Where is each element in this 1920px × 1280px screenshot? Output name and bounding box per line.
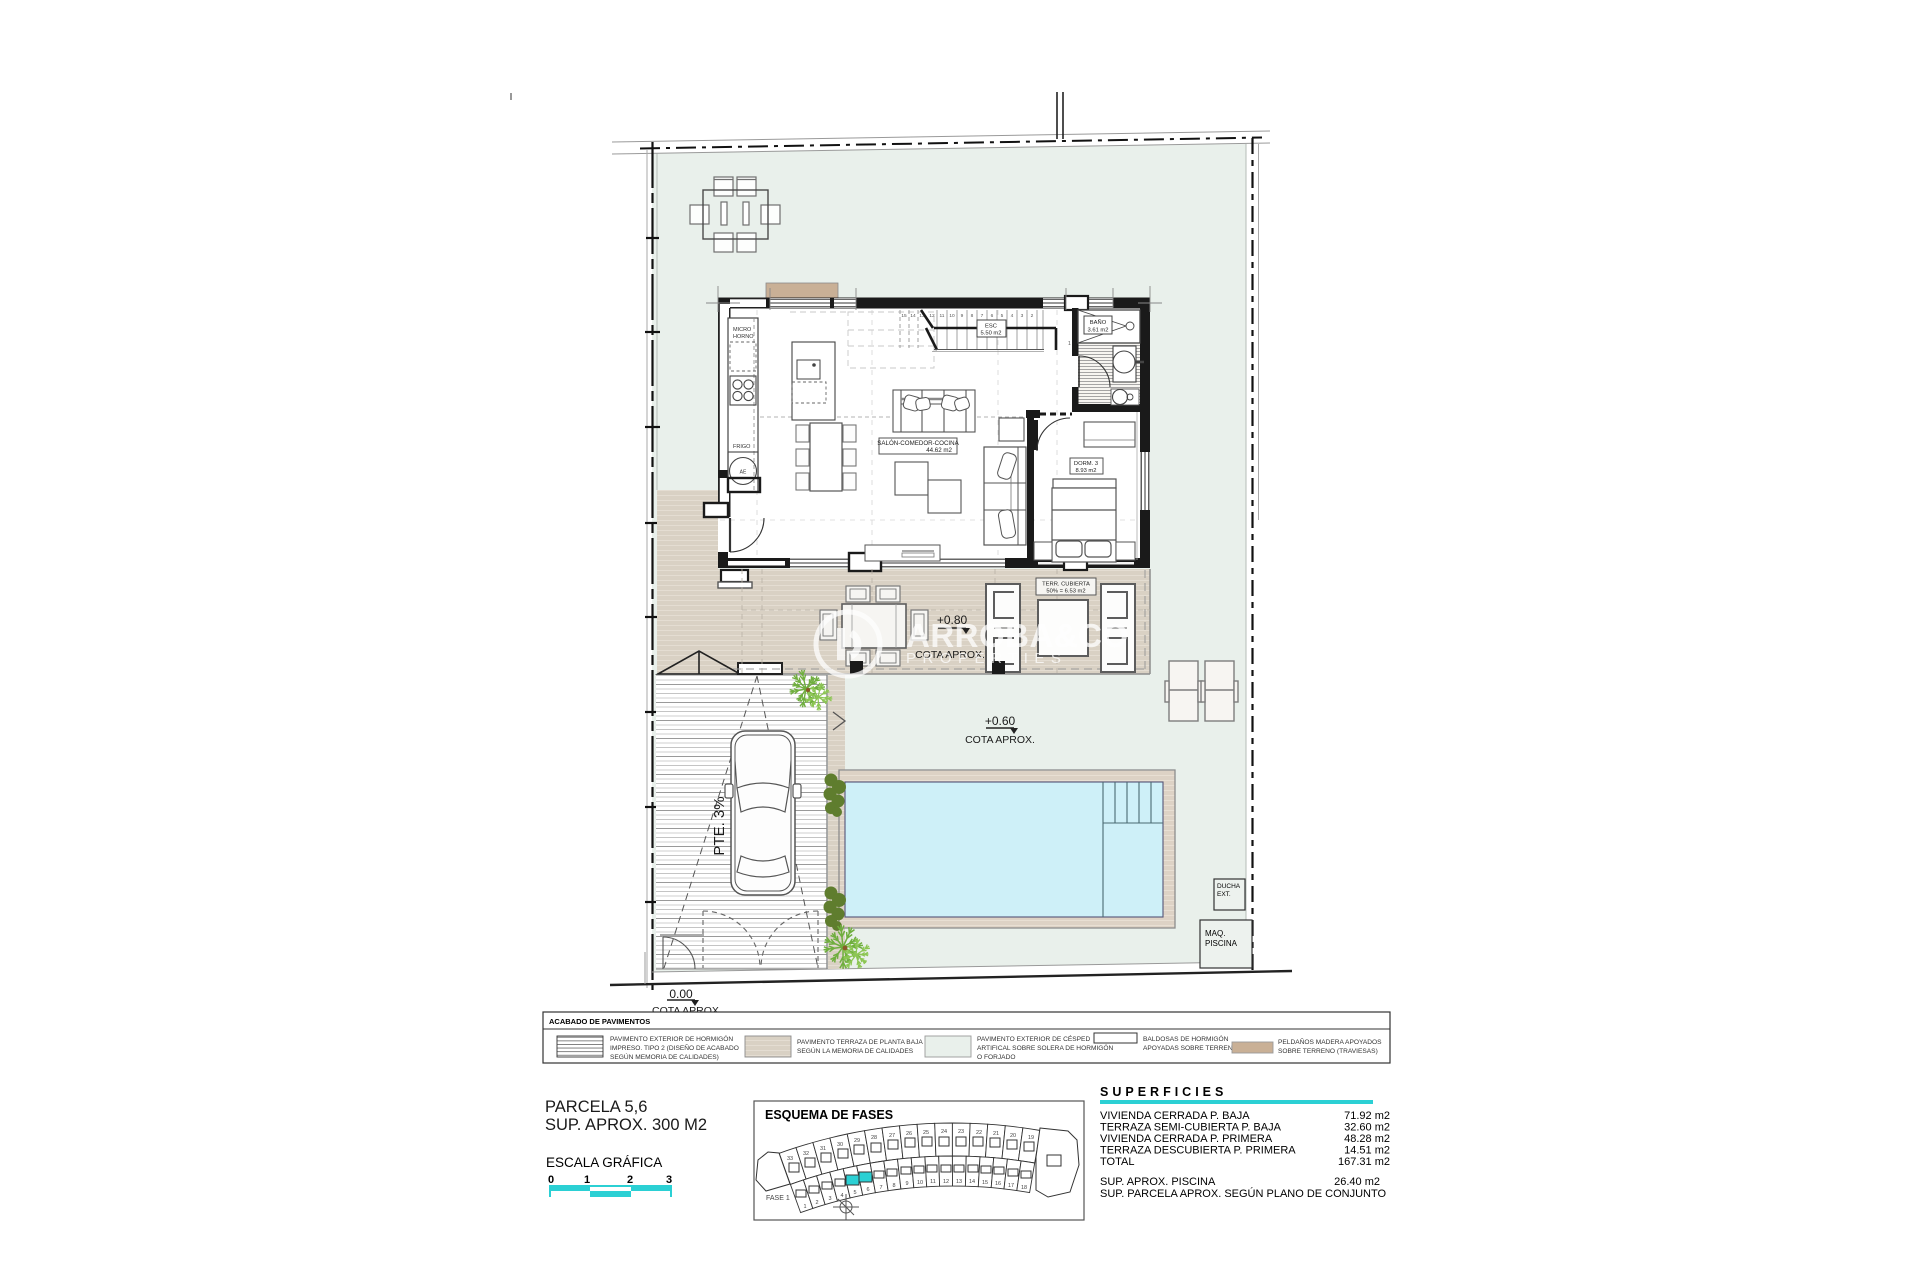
svg-text:44.62 m2: 44.62 m2 xyxy=(926,447,952,454)
svg-text:5: 5 xyxy=(853,1190,856,1196)
svg-text:+0.60: +0.60 xyxy=(985,714,1016,728)
svg-text:SUP. APROX. PISCINA: SUP. APROX. PISCINA xyxy=(1100,1176,1216,1188)
svg-text:SEGÚN MEMORIA DE CALIDADES): SEGÚN MEMORIA DE CALIDADES) xyxy=(610,1052,719,1061)
svg-text:28: 28 xyxy=(871,1135,877,1141)
svg-text:26.40 m2: 26.40 m2 xyxy=(1334,1176,1380,1188)
svg-text:TERRAZA SEMI-CUBIERTA P. BAJA: TERRAZA SEMI-CUBIERTA P. BAJA xyxy=(1100,1122,1282,1134)
svg-text:SUPERFICIES: SUPERFICIES xyxy=(1100,1085,1227,1099)
svg-text:FASE 1: FASE 1 xyxy=(766,1195,790,1202)
svg-text:ESQUEMA DE FASES: ESQUEMA DE FASES xyxy=(765,1108,893,1122)
svg-text:TOTAL: TOTAL xyxy=(1100,1156,1134,1168)
svg-text:FRIGO: FRIGO xyxy=(733,444,751,450)
svg-text:PISCINA: PISCINA xyxy=(1205,939,1238,948)
svg-text:14.51 m2: 14.51 m2 xyxy=(1344,1145,1390,1157)
svg-text:MICRO: MICRO xyxy=(733,327,752,333)
svg-text:48.28 m2: 48.28 m2 xyxy=(1344,1133,1390,1145)
svg-text:16: 16 xyxy=(995,1181,1001,1187)
svg-text:71.92 m2: 71.92 m2 xyxy=(1344,1110,1390,1122)
svg-text:32: 32 xyxy=(803,1151,809,1157)
svg-text:AE: AE xyxy=(740,470,747,476)
svg-text:PARCELA 5,6: PARCELA 5,6 xyxy=(545,1098,647,1116)
svg-text:21: 21 xyxy=(993,1131,999,1137)
svg-text:13: 13 xyxy=(956,1179,962,1185)
svg-text:8: 8 xyxy=(971,313,974,319)
svg-text:ESC: ESC xyxy=(985,324,997,330)
svg-text:50% = 6.53 m2: 50% = 6.53 m2 xyxy=(1046,589,1085,595)
svg-text:33: 33 xyxy=(787,1156,793,1162)
svg-text:APOYADAS SOBRE TERRENO: APOYADAS SOBRE TERRENO xyxy=(1143,1045,1238,1052)
svg-text:4: 4 xyxy=(1011,313,1014,319)
svg-text:14: 14 xyxy=(969,1179,975,1185)
svg-text:15: 15 xyxy=(982,1180,988,1186)
svg-text:10: 10 xyxy=(949,313,955,319)
svg-text:PTE. 3%: PTE. 3% xyxy=(711,796,728,855)
svg-text:167.31 m2: 167.31 m2 xyxy=(1338,1156,1390,1168)
svg-text:COTA APROX.: COTA APROX. xyxy=(965,734,1035,746)
svg-text:SUP. APROX. 300 M2: SUP. APROX. 300 M2 xyxy=(545,1116,707,1134)
svg-text:PROPERTIES: PROPERTIES xyxy=(906,650,1067,667)
svg-text:SALÓN-COMEDOR-COCINA: SALÓN-COMEDOR-COCINA xyxy=(877,440,959,447)
svg-text:12: 12 xyxy=(943,1179,949,1185)
svg-text:ARROBA&CO: ARROBA&CO xyxy=(906,617,1129,654)
svg-text:EXT.: EXT. xyxy=(1217,891,1231,898)
svg-text:26: 26 xyxy=(906,1131,912,1137)
svg-text:7: 7 xyxy=(981,313,984,319)
svg-text:27: 27 xyxy=(889,1133,895,1139)
svg-text:SEGÚN LA MEMORIA DE CALIDADES: SEGÚN LA MEMORIA DE CALIDADES xyxy=(797,1046,914,1055)
svg-text:20: 20 xyxy=(1010,1133,1016,1139)
svg-text:BAÑO: BAÑO xyxy=(1090,319,1107,326)
svg-text:BALDOSAS DE HORMIGÓN: BALDOSAS DE HORMIGÓN xyxy=(1143,1034,1229,1043)
svg-text:MAQ.: MAQ. xyxy=(1205,929,1225,938)
svg-text:O FORJADO: O FORJADO xyxy=(977,1054,1015,1061)
svg-text:VIVIENDA CERRADA P. BAJA: VIVIENDA CERRADA P. BAJA xyxy=(1100,1110,1250,1122)
svg-text:5.50 m2: 5.50 m2 xyxy=(981,331,1002,337)
svg-text:PAVIMENTO EXTERIOR DE HORMIGÓN: PAVIMENTO EXTERIOR DE HORMIGÓN xyxy=(610,1034,733,1043)
svg-text:2: 2 xyxy=(815,1200,818,1206)
svg-text:3: 3 xyxy=(828,1196,831,1202)
svg-text:8.93 m2: 8.93 m2 xyxy=(1076,468,1097,474)
svg-text:17: 17 xyxy=(1008,1183,1014,1189)
svg-text:1: 1 xyxy=(1068,341,1071,347)
svg-text:32.60 m2: 32.60 m2 xyxy=(1344,1122,1390,1134)
svg-text:23: 23 xyxy=(958,1129,964,1135)
svg-text:15: 15 xyxy=(901,313,907,319)
svg-text:2: 2 xyxy=(627,1174,633,1186)
svg-text:1: 1 xyxy=(803,1204,806,1210)
svg-text:24: 24 xyxy=(941,1129,947,1135)
svg-text:10: 10 xyxy=(917,1180,923,1186)
svg-text:6: 6 xyxy=(866,1187,869,1193)
svg-text:11: 11 xyxy=(940,313,945,319)
svg-text:11: 11 xyxy=(930,1179,936,1185)
svg-text:7: 7 xyxy=(879,1185,882,1191)
svg-text:ESCALA GRÁFICA: ESCALA GRÁFICA xyxy=(546,1155,662,1170)
svg-text:DUCHA: DUCHA xyxy=(1217,883,1241,890)
svg-text:SOBRE TERRENO (TRAVIESAS): SOBRE TERRENO (TRAVIESAS) xyxy=(1278,1048,1378,1055)
svg-text:18: 18 xyxy=(1021,1185,1027,1191)
svg-text:PAVIMENTO TERRAZA DE PLANTA BA: PAVIMENTO TERRAZA DE PLANTA BAJA xyxy=(797,1039,923,1046)
svg-text:5: 5 xyxy=(1001,313,1004,319)
svg-text:29: 29 xyxy=(854,1138,860,1144)
svg-text:DORM. 3: DORM. 3 xyxy=(1074,461,1098,467)
svg-text:TERR. CUBIERTA: TERR. CUBIERTA xyxy=(1042,582,1090,588)
svg-text:HORNO: HORNO xyxy=(733,334,754,340)
svg-text:3: 3 xyxy=(666,1174,672,1186)
svg-text:22: 22 xyxy=(976,1130,982,1136)
svg-text:TERRAZA DESCUBIERTA P. PRIMERA: TERRAZA DESCUBIERTA P. PRIMERA xyxy=(1100,1145,1296,1157)
svg-text:ACABADO DE PAVIMENTOS: ACABADO DE PAVIMENTOS xyxy=(549,1017,650,1026)
svg-text:IMPRESO. TIPO 2 (DISEÑO DE ACA: IMPRESO. TIPO 2 (DISEÑO DE ACABADO xyxy=(610,1043,739,1052)
svg-text:0: 0 xyxy=(548,1174,554,1186)
svg-text:PAVIMENTO EXTERIOR DE CÉSPED: PAVIMENTO EXTERIOR DE CÉSPED xyxy=(977,1034,1090,1043)
svg-text:6: 6 xyxy=(991,313,994,319)
svg-text:ARTIFICAL SOBRE SOLERA DE HORM: ARTIFICAL SOBRE SOLERA DE HORMIGÓN xyxy=(977,1043,1114,1052)
svg-text:9: 9 xyxy=(905,1181,908,1187)
svg-text:31: 31 xyxy=(820,1146,826,1152)
svg-text:4: 4 xyxy=(840,1193,843,1199)
svg-text:SUP. PARCELA APROX. SEGÚN PLAN: SUP. PARCELA APROX. SEGÚN PLANO DE CONJU… xyxy=(1100,1187,1387,1200)
svg-text:30: 30 xyxy=(837,1142,843,1148)
svg-text:2: 2 xyxy=(1031,313,1034,319)
svg-text:3: 3 xyxy=(1021,313,1024,319)
svg-text:12: 12 xyxy=(929,313,935,319)
svg-text:VIVIENDA CERRADA P. PRIMERA: VIVIENDA CERRADA P. PRIMERA xyxy=(1100,1133,1273,1145)
svg-text:0.00: 0.00 xyxy=(669,987,693,1001)
svg-text:19: 19 xyxy=(1028,1135,1034,1141)
svg-text:1: 1 xyxy=(584,1174,590,1186)
svg-text:25: 25 xyxy=(923,1130,929,1136)
svg-text:PELDAÑOS MADERA APOYADOS: PELDAÑOS MADERA APOYADOS xyxy=(1278,1037,1382,1046)
svg-text:3.61 m2: 3.61 m2 xyxy=(1088,328,1109,334)
svg-text:9: 9 xyxy=(961,313,964,319)
svg-text:14: 14 xyxy=(910,313,916,319)
svg-text:8: 8 xyxy=(892,1183,895,1189)
